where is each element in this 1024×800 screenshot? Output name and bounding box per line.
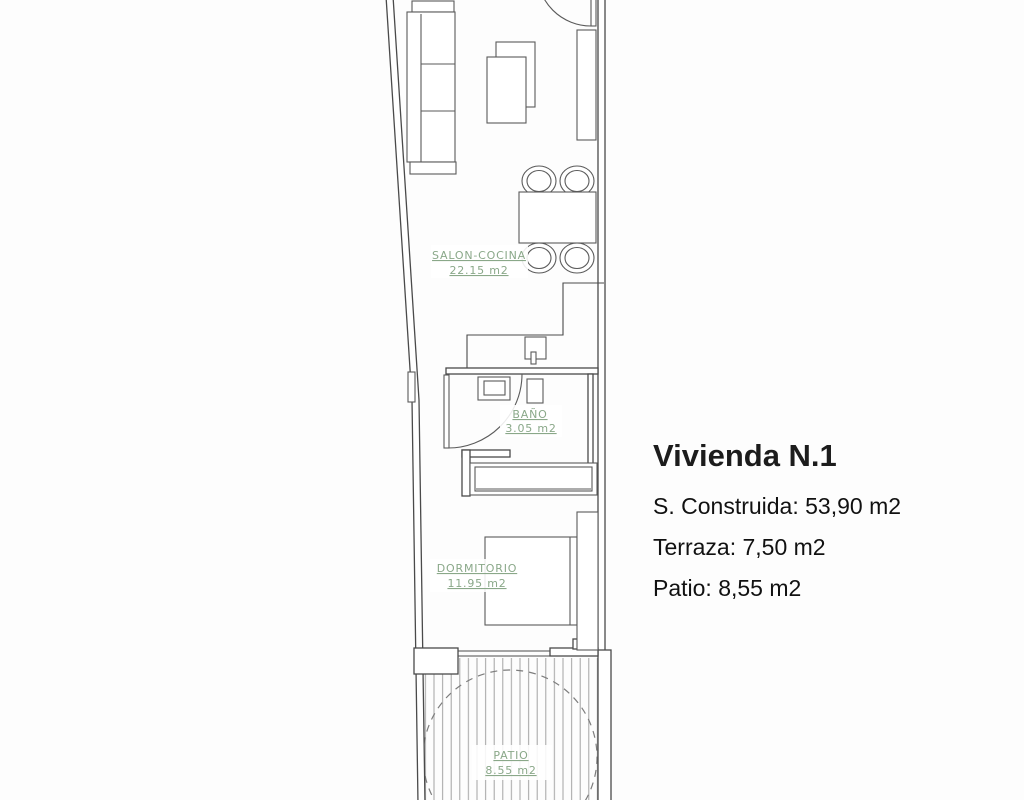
sofa bbox=[407, 1, 456, 174]
floor-plan-page: SALON-COCINA 22.15 m2 BAÑO 3.05 m2 DORMI… bbox=[0, 0, 1024, 800]
dining-chair bbox=[560, 243, 594, 273]
entrance-door-swing-arc bbox=[537, 0, 591, 26]
kitchen-sink bbox=[525, 337, 546, 364]
dining-table bbox=[519, 192, 596, 243]
room-name: SALON-COCINA bbox=[432, 249, 526, 262]
room-label-bano: BAÑO 3.05 m2 bbox=[500, 405, 562, 437]
room-area: 3.05 m2 bbox=[505, 422, 556, 435]
hall-closet bbox=[470, 463, 597, 495]
bathroom-sink bbox=[478, 377, 510, 400]
spec-constructed-area: S. Construida: 53,90 m2 bbox=[653, 486, 901, 527]
toilet bbox=[527, 379, 543, 403]
entrance-door bbox=[537, 0, 596, 26]
room-label-patio: PATIO 8.55 m2 bbox=[472, 745, 552, 780]
patio-right-wall bbox=[598, 650, 611, 800]
hall-wall-stub bbox=[462, 450, 470, 496]
spec-patio-area: Patio: 8,55 m2 bbox=[653, 568, 901, 609]
right-wall bbox=[598, 0, 605, 656]
room-area: 11.95 m2 bbox=[447, 577, 506, 590]
room-name: DORMITORIO bbox=[437, 562, 517, 575]
wardrobe bbox=[577, 512, 598, 650]
entrance-door-leaf bbox=[591, 0, 596, 26]
room-area: 22.15 m2 bbox=[449, 264, 508, 277]
tv-cabinet bbox=[577, 30, 596, 140]
floor-plan-drawing: SALON-COCINA 22.15 m2 BAÑO 3.05 m2 DORMI… bbox=[0, 0, 1024, 800]
bathroom-inner-wall bbox=[588, 374, 593, 464]
patio-left-pier bbox=[414, 648, 458, 674]
room-area: 8.55 m2 bbox=[485, 764, 536, 777]
unit-title: Vivienda N.1 bbox=[653, 438, 901, 474]
hall-door-leaf bbox=[408, 372, 415, 402]
info-panel: Vivienda N.1 S. Construida: 53,90 m2 Ter… bbox=[653, 438, 901, 609]
room-name: BAÑO bbox=[512, 408, 547, 421]
armchair bbox=[487, 42, 535, 123]
bathroom-top-wall bbox=[446, 368, 598, 374]
dining-set bbox=[519, 166, 596, 273]
patio-door-track bbox=[458, 651, 550, 656]
bathroom-door-leaf bbox=[444, 375, 449, 448]
room-label-dormitorio: DORMITORIO 11.95 m2 bbox=[430, 559, 525, 592]
spec-terrace-area: Terraza: 7,50 m2 bbox=[653, 527, 901, 568]
room-label-salon-cocina: SALON-COCINA 22.15 m2 bbox=[431, 245, 528, 278]
room-name: PATIO bbox=[493, 749, 528, 762]
